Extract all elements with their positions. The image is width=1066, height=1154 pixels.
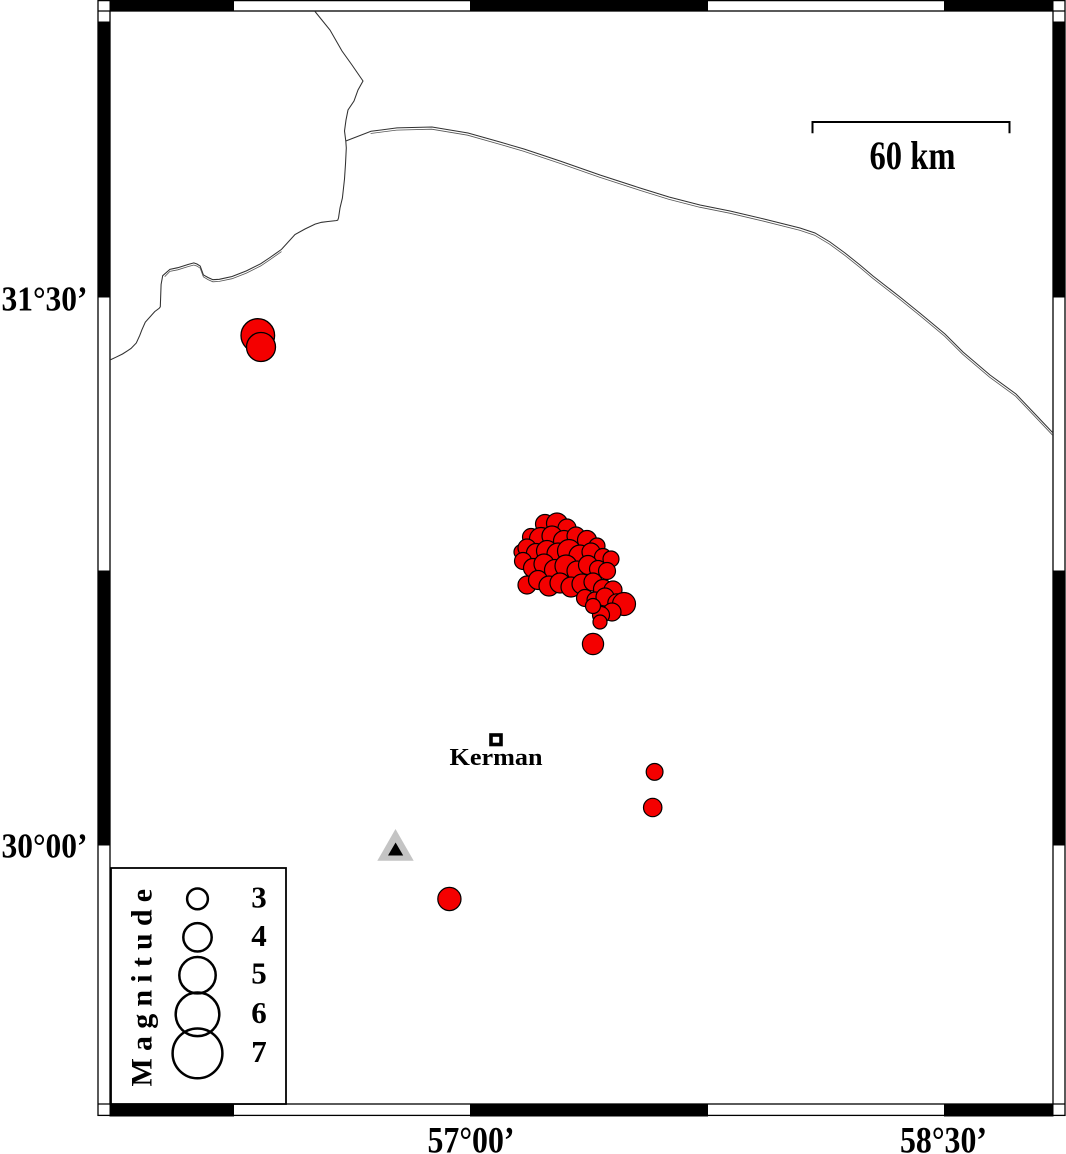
svg-text:Kerman: Kerman: [450, 745, 543, 771]
svg-text:57°00’: 57°00’: [428, 1120, 515, 1154]
svg-text:60 km: 60 km: [870, 133, 956, 178]
svg-text:30°00’: 30°00’: [2, 827, 88, 866]
svg-text:31°30’: 31°30’: [2, 280, 88, 319]
svg-text:6: 6: [251, 995, 267, 1030]
svg-text:4: 4: [251, 918, 267, 953]
svg-text:58°30’: 58°30’: [900, 1120, 987, 1154]
svg-text:Magnitude: Magnitude: [126, 882, 159, 1087]
svg-text:3: 3: [251, 879, 267, 914]
svg-text:5: 5: [251, 956, 267, 991]
svg-text:7: 7: [251, 1034, 267, 1069]
